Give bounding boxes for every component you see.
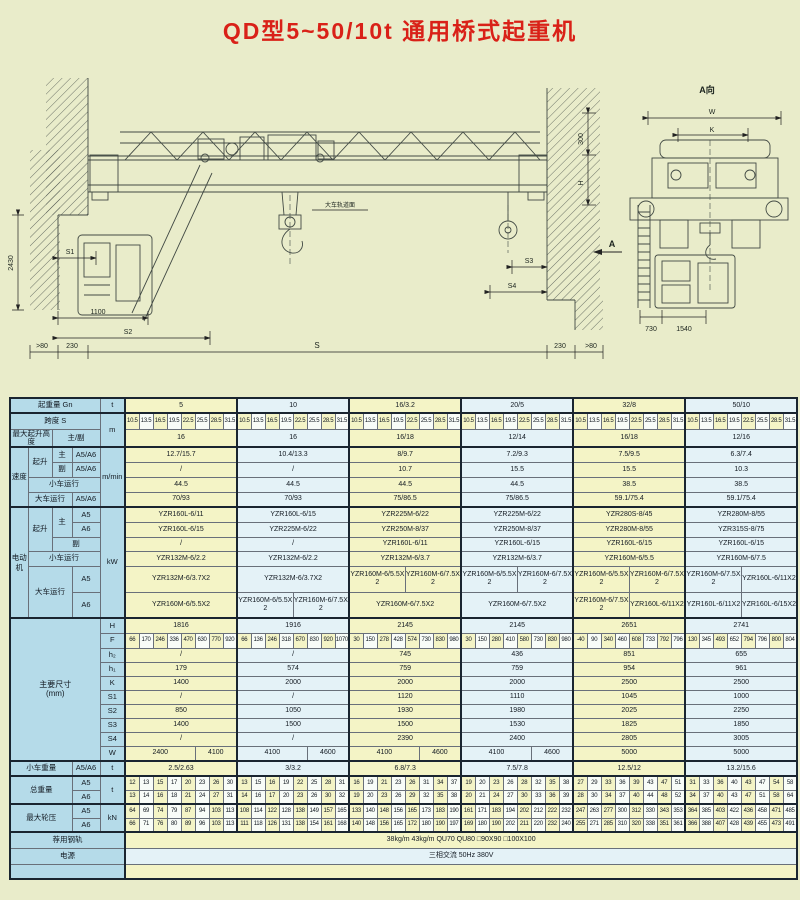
cell: 15.5 bbox=[461, 462, 573, 477]
cell: YZR160M-6/5.5X2 bbox=[349, 566, 405, 592]
dim-name-H: H bbox=[100, 618, 125, 633]
cell: YZR160M-6/5.5 bbox=[573, 551, 685, 566]
cell: 954 bbox=[573, 662, 685, 676]
cell: 30 bbox=[223, 776, 237, 790]
cell: 1500 bbox=[237, 718, 349, 732]
cell: YZR280S-8/45 bbox=[573, 507, 685, 522]
cell: 19.5 bbox=[279, 413, 293, 429]
cell: 118 bbox=[251, 818, 265, 832]
row-speed-trolley: 小车运行 44.544.544.544.538.538.5 bbox=[10, 477, 797, 492]
cell: 247 bbox=[573, 804, 587, 818]
cell: YZR160M-6/7.5X2 bbox=[629, 566, 685, 592]
cell: 473 bbox=[769, 818, 783, 832]
cell: 89 bbox=[181, 818, 195, 832]
cell: 851 bbox=[573, 648, 685, 662]
label-lift-height: 最大起升高度 bbox=[10, 429, 52, 447]
cell: 96 bbox=[195, 818, 209, 832]
cell: 40 bbox=[713, 790, 727, 804]
aux-pulley bbox=[499, 192, 517, 253]
cell: 343 bbox=[657, 804, 671, 818]
cell: 15 bbox=[251, 776, 265, 790]
cell: 30 bbox=[349, 633, 363, 648]
cell: 157 bbox=[321, 804, 335, 818]
cell: 220 bbox=[531, 818, 545, 832]
cell: YZR160L-6/11 bbox=[349, 537, 461, 551]
cell: 460 bbox=[615, 633, 629, 648]
cell: 24 bbox=[195, 790, 209, 804]
cell: 351 bbox=[657, 818, 671, 832]
cell: YZR160M-6/7.5X2 bbox=[461, 592, 573, 618]
cell: 173 bbox=[419, 804, 433, 818]
cell: 150 bbox=[475, 633, 489, 648]
cell: 320 bbox=[629, 818, 643, 832]
label-main-dimensions: 主要尺寸 (mm) bbox=[10, 618, 100, 761]
cell: / bbox=[237, 690, 349, 704]
cell: 2000 bbox=[349, 676, 461, 690]
cell: 113 bbox=[223, 818, 237, 832]
cell: YZR160M-6/7.5 bbox=[685, 551, 797, 566]
cell: 13 bbox=[125, 790, 139, 804]
label-power: 电源 bbox=[10, 848, 125, 864]
cell: 1045 bbox=[573, 690, 685, 704]
cell: 64 bbox=[125, 804, 139, 818]
cell: 263 bbox=[587, 804, 601, 818]
dim-label-gt80-right: >80 bbox=[585, 343, 597, 350]
row-motor-crane-a5: 大车运行 A5 YZR132M-6/3.7X2YZR132M-6/3.7X2YZ… bbox=[10, 566, 797, 592]
label-wheel-load: 最大轮压 bbox=[10, 804, 72, 832]
dim-label-gt80-left: >80 bbox=[36, 343, 48, 350]
cell: YZR225M-6/22 bbox=[349, 507, 461, 522]
cell: 759 bbox=[349, 662, 461, 676]
cell: 246 bbox=[265, 633, 279, 648]
cell: 6.8/7.3 bbox=[349, 761, 461, 776]
cell: 80 bbox=[167, 818, 181, 832]
dim-name-h1: h₁ bbox=[100, 662, 125, 676]
cell: 16 bbox=[251, 790, 265, 804]
cell: 2400 bbox=[461, 732, 573, 746]
cell: 336 bbox=[167, 633, 181, 648]
cab-end-view bbox=[655, 255, 735, 308]
cell: 310 bbox=[615, 818, 629, 832]
cell: 574 bbox=[237, 662, 349, 676]
cell: 2500 bbox=[573, 676, 685, 690]
cell: 54 bbox=[769, 776, 783, 790]
row-dim-K: K 140020002000200025002500 bbox=[10, 676, 797, 690]
cell: 222 bbox=[545, 804, 559, 818]
cell: 31.5 bbox=[223, 413, 237, 429]
label-motor: 电动机 bbox=[10, 507, 28, 618]
cell: 439 bbox=[741, 818, 755, 832]
cell: / bbox=[125, 648, 237, 662]
cell: 32 bbox=[335, 790, 349, 804]
cell: 180 bbox=[419, 818, 433, 832]
cell: 136 bbox=[251, 633, 265, 648]
cell: 22.5 bbox=[741, 413, 755, 429]
cell: YZR315S-8/75 bbox=[685, 522, 797, 537]
cell: 20 bbox=[475, 776, 489, 790]
cell: 50/10 bbox=[685, 398, 797, 413]
cell: 52 bbox=[671, 790, 685, 804]
cell: 759 bbox=[461, 662, 573, 676]
cell: 169 bbox=[461, 818, 475, 832]
cell: 26 bbox=[307, 790, 321, 804]
cell: YZR160M-6/7.5X2 bbox=[349, 592, 461, 618]
cell: 385 bbox=[699, 804, 713, 818]
cell: 140 bbox=[349, 818, 363, 832]
cell: 140 bbox=[363, 804, 377, 818]
cell: 1850 bbox=[685, 718, 797, 732]
cell: 1980 bbox=[461, 704, 573, 718]
cell: 1400 bbox=[125, 718, 237, 732]
cell: 36 bbox=[713, 776, 727, 790]
cell: 28.5 bbox=[209, 413, 223, 429]
main-hook bbox=[279, 192, 303, 267]
cell: 22.5 bbox=[405, 413, 419, 429]
cell: 44.5 bbox=[237, 477, 349, 492]
cell: 13.5 bbox=[699, 413, 713, 429]
cell: 920 bbox=[223, 633, 237, 648]
cell: 770 bbox=[209, 633, 223, 648]
cell: 39 bbox=[559, 790, 573, 804]
cell: 330 bbox=[643, 804, 657, 818]
label-a5: A5 bbox=[72, 776, 100, 790]
row-dim-H: 主要尺寸 (mm) H 181619162145214526512741 bbox=[10, 618, 797, 633]
cell: 25.5 bbox=[643, 413, 657, 429]
cell: 19 bbox=[461, 776, 475, 790]
cell: -40 bbox=[573, 633, 587, 648]
cell: 22.5 bbox=[629, 413, 643, 429]
cell: YZR280M-8/55 bbox=[685, 507, 797, 522]
cell: 165 bbox=[391, 818, 405, 832]
label-crane-travel: 大车运行 bbox=[28, 566, 72, 618]
label-hoist: 起升 bbox=[28, 447, 52, 477]
cell: 4100 bbox=[349, 746, 419, 761]
cell: 28.5 bbox=[433, 413, 447, 429]
cell: 47 bbox=[657, 776, 671, 790]
cell: 407 bbox=[713, 818, 727, 832]
label-a5a6: A5/A6 bbox=[72, 462, 100, 477]
unit-span: m bbox=[100, 413, 125, 447]
cell: 13.2/15.6 bbox=[685, 761, 797, 776]
cell: 2651 bbox=[573, 618, 685, 633]
cell: 10.3 bbox=[685, 462, 797, 477]
cell: 20 bbox=[363, 790, 377, 804]
cell: 27 bbox=[503, 790, 517, 804]
cell: 211 bbox=[517, 818, 531, 832]
cell: 36 bbox=[615, 776, 629, 790]
cell: 353 bbox=[671, 804, 685, 818]
cell: 19.5 bbox=[167, 413, 181, 429]
cell: 20/5 bbox=[461, 398, 573, 413]
row-dim-S2: S2 85010501930198020252250 bbox=[10, 704, 797, 718]
dim-label-230-left: 230 bbox=[66, 343, 78, 350]
cell: 2250 bbox=[685, 704, 797, 718]
cell: 58 bbox=[783, 776, 797, 790]
label-a6: A6 bbox=[72, 790, 100, 804]
row-trolley-weight: 小车重量 A5/A6 t 2.5/2.633/3.26.8/7.37.5/7.8… bbox=[10, 761, 797, 776]
cell: 12 bbox=[125, 776, 139, 790]
cell: 25.5 bbox=[419, 413, 433, 429]
label-a5: A5 bbox=[72, 507, 100, 522]
cell: 194 bbox=[503, 804, 517, 818]
cell: 190 bbox=[447, 804, 461, 818]
cell: 1070 bbox=[335, 633, 349, 648]
cell: YZR160L-6/15 bbox=[573, 537, 685, 551]
dim-label-s2: S2 bbox=[124, 329, 133, 336]
cell: 28 bbox=[321, 776, 335, 790]
crane-drawing: A向 W K 300 H A 大车轨道面 S1 1100 S2 >80 230 … bbox=[0, 55, 800, 395]
cell: 32/8 bbox=[573, 398, 685, 413]
cell: YZR132M-6/2.2 bbox=[237, 551, 349, 566]
cell: 436 bbox=[741, 804, 755, 818]
cell: 2000 bbox=[237, 676, 349, 690]
cell: 19.5 bbox=[615, 413, 629, 429]
cell: 103 bbox=[209, 804, 223, 818]
cell: 3005 bbox=[685, 732, 797, 746]
cell: / bbox=[237, 648, 349, 662]
row-dim-W: W 24004100410046004100460041004600500050… bbox=[10, 746, 797, 761]
cell: 44.5 bbox=[125, 477, 237, 492]
row-lift-height: 最大起升高度 主/副 161616/1812/1416/1812/16 bbox=[10, 429, 797, 447]
cell: / bbox=[237, 537, 349, 551]
unit-speed: m/min bbox=[100, 447, 125, 507]
label-a6: A6 bbox=[72, 522, 100, 537]
cell: 17 bbox=[167, 776, 181, 790]
cell: 190 bbox=[433, 818, 447, 832]
cell: 14 bbox=[139, 790, 153, 804]
cell: 733 bbox=[643, 633, 657, 648]
dim-label-2430: 2430 bbox=[8, 255, 15, 271]
cell: 43 bbox=[643, 776, 657, 790]
cell: 30 bbox=[461, 633, 475, 648]
cell: 171 bbox=[475, 804, 489, 818]
cell: YZR225M-6/22 bbox=[461, 507, 573, 522]
cell: 34 bbox=[433, 776, 447, 790]
label-capacity: 起重量 Gn bbox=[10, 398, 100, 413]
cell: 22.5 bbox=[293, 413, 307, 429]
cell: 165 bbox=[405, 804, 419, 818]
cell: 37 bbox=[447, 776, 461, 790]
cell: 38.5 bbox=[573, 477, 685, 492]
cell: 212 bbox=[531, 804, 545, 818]
cell: 76 bbox=[153, 818, 167, 832]
label-a5a6: A5/A6 bbox=[72, 492, 100, 507]
cell: 255 bbox=[573, 818, 587, 832]
rail-surface-note: 大车轨道面 bbox=[325, 201, 355, 209]
cell: YZR280M-8/55 bbox=[573, 522, 685, 537]
cell: 79 bbox=[167, 804, 181, 818]
cell: 35 bbox=[545, 776, 559, 790]
dim-label-k: K bbox=[710, 127, 715, 134]
row-dim-h1: h₁ 179574759759954961 bbox=[10, 662, 797, 676]
cell: 10.5 bbox=[685, 413, 699, 429]
cell: YZR160M-6/5.5X2 bbox=[125, 592, 237, 618]
cell: 22 bbox=[293, 776, 307, 790]
cell: 19 bbox=[363, 776, 377, 790]
cell: YZR132M-6/3.7 bbox=[461, 551, 573, 566]
dim-label-230-right: 230 bbox=[554, 343, 566, 350]
cell: 31.5 bbox=[559, 413, 573, 429]
cell: YZR160L-6/15 bbox=[461, 537, 573, 551]
row-capacity: 起重量 Gn t 51016/3.220/532/850/10 bbox=[10, 398, 797, 413]
cell: 66 bbox=[125, 818, 139, 832]
cell: 1000 bbox=[685, 690, 797, 704]
label-trolley-travel: 小车运行 bbox=[28, 551, 100, 566]
cell: 2805 bbox=[573, 732, 685, 746]
cell: YZR132M-6/2.2 bbox=[125, 551, 237, 566]
cell: 800 bbox=[769, 633, 783, 648]
section-arrow-label: A bbox=[609, 239, 616, 249]
unit-total-weight: t bbox=[100, 776, 125, 804]
cell: 340 bbox=[601, 633, 615, 648]
cell: 16 bbox=[153, 790, 167, 804]
cell: 38 bbox=[559, 776, 573, 790]
label-speed: 速度 bbox=[10, 447, 28, 507]
label-a5: A5 bbox=[72, 804, 100, 818]
cell: 792 bbox=[657, 633, 671, 648]
label-rail: 荐用钢轨 bbox=[10, 832, 125, 848]
cell: 27 bbox=[573, 776, 587, 790]
cell: 66 bbox=[125, 633, 139, 648]
cell: 19.5 bbox=[727, 413, 741, 429]
cell: 730 bbox=[419, 633, 433, 648]
cell: 830 bbox=[307, 633, 321, 648]
cell: 59.1/75.4 bbox=[685, 492, 797, 507]
cell: 312 bbox=[629, 804, 643, 818]
cell: 19 bbox=[279, 776, 293, 790]
dim-name-S2: S2 bbox=[100, 704, 125, 718]
view-a-label: A向 bbox=[699, 84, 715, 95]
cell: 670 bbox=[293, 633, 307, 648]
cell: 16/3.2 bbox=[349, 398, 461, 413]
cell: 24 bbox=[489, 790, 503, 804]
cell: YZR160L-6/11X2 bbox=[741, 566, 797, 592]
cell: 7.2/9.3 bbox=[461, 447, 573, 462]
label-total-weight: 总重量 bbox=[10, 776, 72, 804]
cell: 44.5 bbox=[461, 477, 573, 492]
cell: 43 bbox=[741, 776, 755, 790]
row-motor-trolley: 小车运行 YZR132M-6/2.2YZR132M-6/2.2YZR132M-6… bbox=[10, 551, 797, 566]
cell: 23 bbox=[391, 776, 405, 790]
cell: 111 bbox=[237, 818, 251, 832]
cell: 232 bbox=[559, 804, 573, 818]
dim-name-S3: S3 bbox=[100, 718, 125, 732]
cell: 278 bbox=[377, 633, 391, 648]
cell: 830 bbox=[545, 633, 559, 648]
cell: 47 bbox=[741, 790, 755, 804]
cell: 1500 bbox=[349, 718, 461, 732]
cell: 64 bbox=[783, 790, 797, 804]
cell: 25.5 bbox=[531, 413, 545, 429]
cell: 25.5 bbox=[755, 413, 769, 429]
cell: 10.7 bbox=[349, 462, 461, 477]
cell: 2741 bbox=[685, 618, 797, 633]
cell: 148 bbox=[377, 804, 391, 818]
cell: 428 bbox=[391, 633, 405, 648]
cell: 16/18 bbox=[349, 429, 461, 447]
dim-label-w: W bbox=[709, 109, 716, 116]
dim-name-S4: S4 bbox=[100, 732, 125, 746]
cell: 126 bbox=[265, 818, 279, 832]
right-wall-hatch-lower bbox=[575, 300, 603, 330]
cell: 608 bbox=[629, 633, 643, 648]
cell: 7.5/7.8 bbox=[461, 761, 573, 776]
cell: 794 bbox=[741, 633, 755, 648]
cell: 197 bbox=[447, 818, 461, 832]
cell: 10.5 bbox=[125, 413, 139, 429]
cell: 4600 bbox=[419, 746, 461, 761]
cell: 1120 bbox=[349, 690, 461, 704]
cell: 29 bbox=[587, 776, 601, 790]
cell: 23 bbox=[293, 790, 307, 804]
cell: 2025 bbox=[573, 704, 685, 718]
label-hoist: 起升 bbox=[28, 507, 52, 551]
cell: 300 bbox=[615, 804, 629, 818]
cell: 31.5 bbox=[671, 413, 685, 429]
cell: 39 bbox=[629, 776, 643, 790]
label-trolley-weight: 小车重量 bbox=[10, 761, 72, 776]
cell: 436 bbox=[461, 648, 573, 662]
cell: 2.5/2.63 bbox=[125, 761, 237, 776]
cell: 161 bbox=[321, 818, 335, 832]
cell: 16 bbox=[265, 776, 279, 790]
cell: YZR132M-6/3.7 bbox=[349, 551, 461, 566]
cell: 3/3.2 bbox=[237, 761, 349, 776]
cell: 388 bbox=[699, 818, 713, 832]
cell: YZR225M-6/22 bbox=[237, 522, 349, 537]
cell: / bbox=[237, 462, 349, 477]
cell: 113 bbox=[223, 804, 237, 818]
cell: 43 bbox=[727, 790, 741, 804]
cell: 69 bbox=[139, 804, 153, 818]
cell: YZR160M-6/7.5X2 bbox=[293, 592, 349, 618]
cell: 66 bbox=[237, 633, 251, 648]
cell: 25 bbox=[307, 776, 321, 790]
label-main: 主 bbox=[52, 507, 72, 537]
cell: 280 bbox=[489, 633, 503, 648]
cell: 15 bbox=[153, 776, 167, 790]
cell: 403 bbox=[713, 804, 727, 818]
label-a5a6: A5/A6 bbox=[72, 447, 100, 462]
cell: 38.5 bbox=[685, 477, 797, 492]
cell: 491 bbox=[783, 818, 797, 832]
cell: 154 bbox=[307, 818, 321, 832]
cell: 271 bbox=[587, 818, 601, 832]
cell: 31.5 bbox=[783, 413, 797, 429]
cell: 4600 bbox=[531, 746, 573, 761]
cell: YZR250M-8/37 bbox=[349, 522, 461, 537]
cell: 131 bbox=[279, 818, 293, 832]
cell: 183 bbox=[433, 804, 447, 818]
cell: 2145 bbox=[461, 618, 573, 633]
cell: 470 bbox=[181, 633, 195, 648]
cell: 5000 bbox=[573, 746, 685, 761]
cell: 6.3/7.4 bbox=[685, 447, 797, 462]
cell: YZR160L-6/15X2 bbox=[741, 592, 797, 618]
cell: 138 bbox=[293, 804, 307, 818]
row-span: 跨度 S m 10.513.516.519.522.525.528.531.51… bbox=[10, 413, 797, 429]
cell: 318 bbox=[279, 633, 293, 648]
cell: 70/93 bbox=[125, 492, 237, 507]
row-dim-h2: h₂ //745436851655 bbox=[10, 648, 797, 662]
cell: 361 bbox=[671, 818, 685, 832]
end-view bbox=[630, 140, 788, 308]
cell: 26 bbox=[405, 776, 419, 790]
cell: 485 bbox=[783, 804, 797, 818]
cell: 1825 bbox=[573, 718, 685, 732]
cell: 149 bbox=[307, 804, 321, 818]
cell: 31.5 bbox=[447, 413, 461, 429]
